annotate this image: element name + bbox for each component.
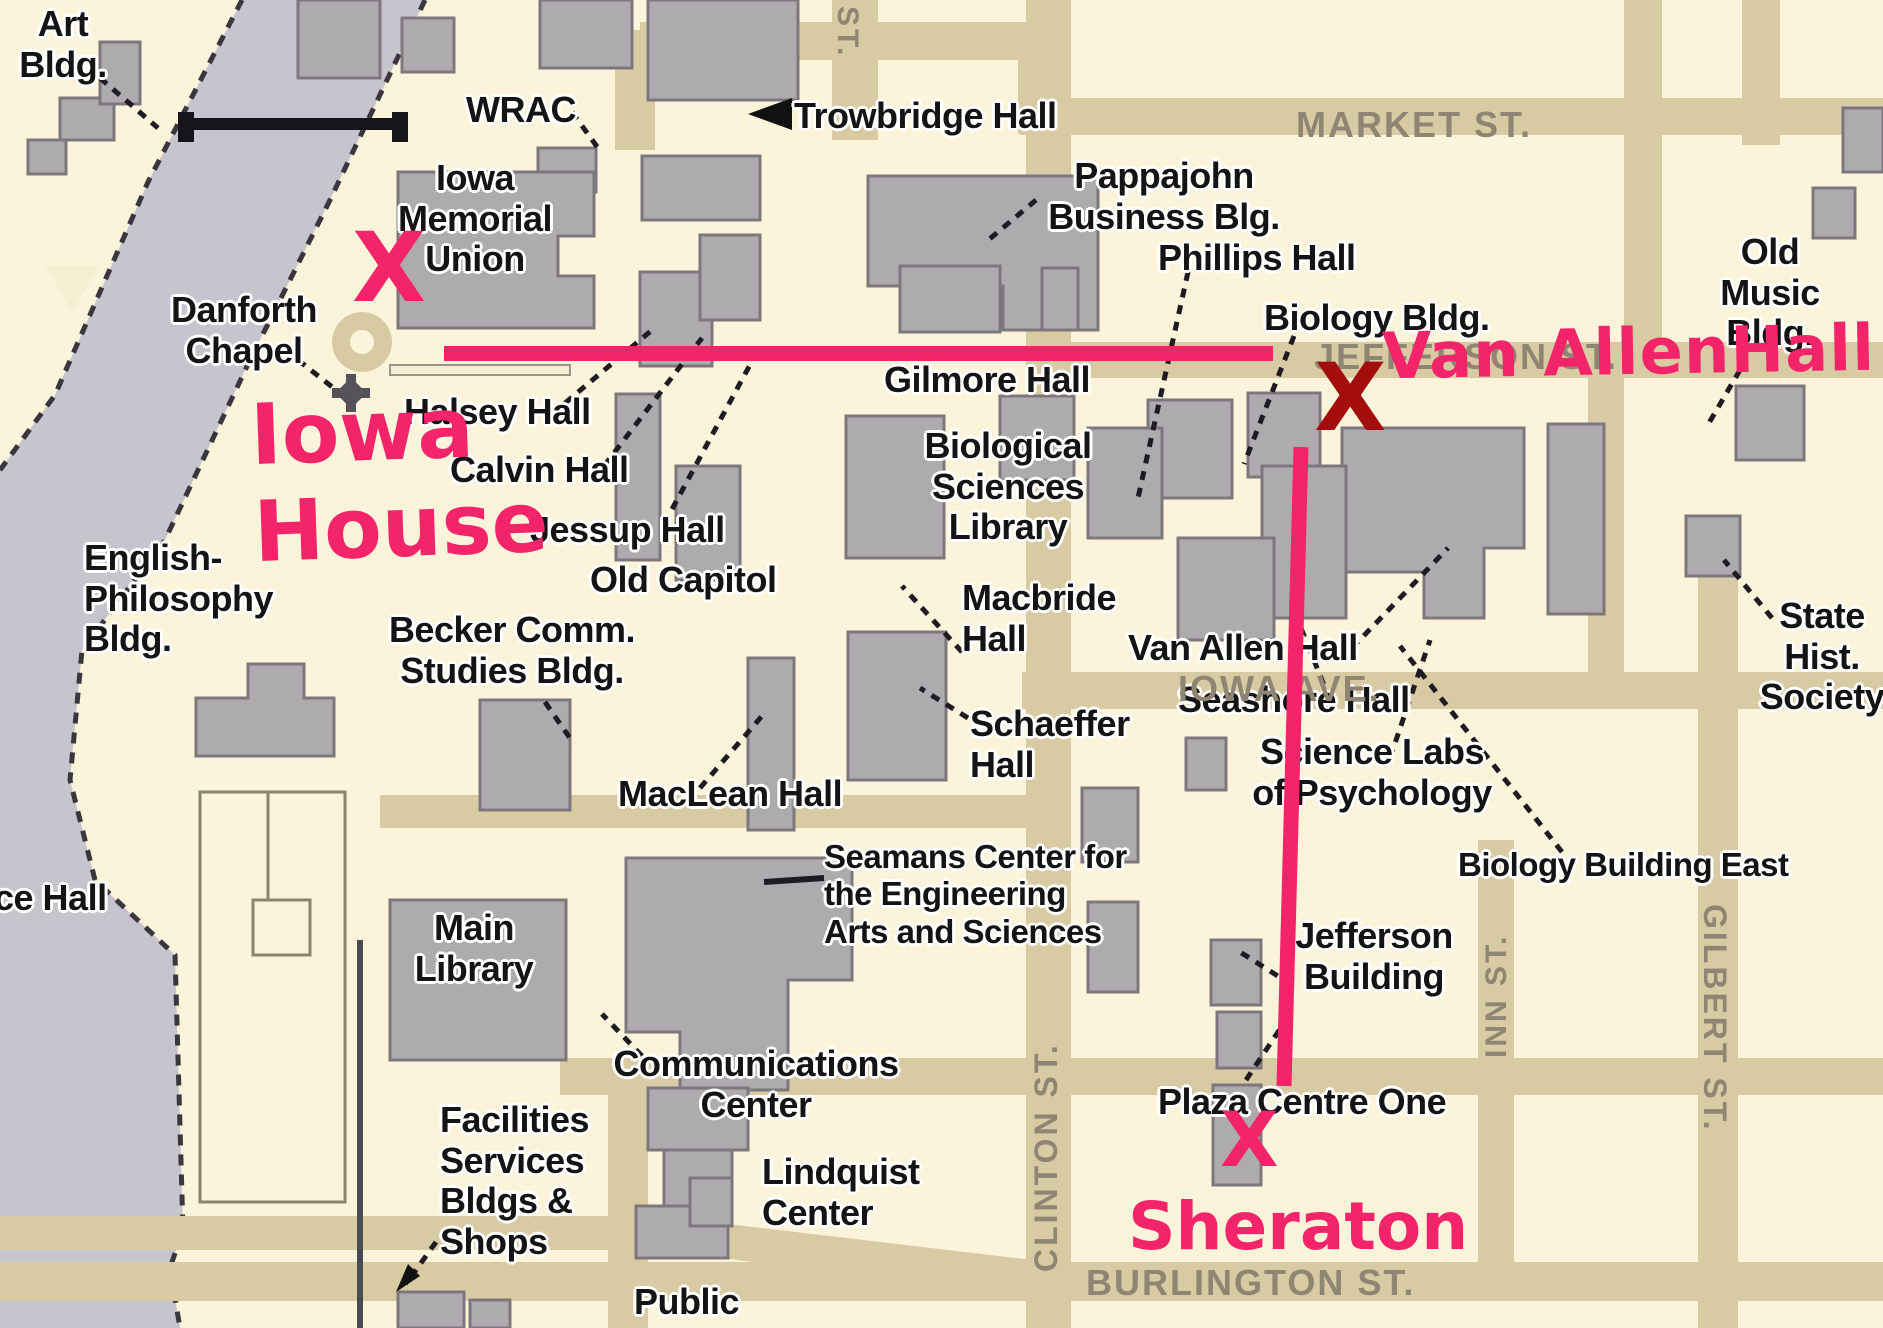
x-mark-van-allen: X bbox=[1314, 352, 1386, 446]
note-van-allen-hall: Van AllenHall bbox=[1381, 312, 1875, 395]
x-mark-sheraton: X bbox=[1220, 1102, 1279, 1178]
note-iowa-house: IowaHouse bbox=[249, 377, 550, 582]
note-sheraton: Sheraton bbox=[1128, 1188, 1468, 1265]
campus-map: ArtBldg. WRAC Trowbridge Hall IowaMemori… bbox=[0, 0, 1883, 1328]
annotations-layer: X IowaHouse X Van AllenHall X Sheraton bbox=[0, 0, 1883, 1328]
x-mark-iowa-house: X bbox=[352, 220, 426, 316]
